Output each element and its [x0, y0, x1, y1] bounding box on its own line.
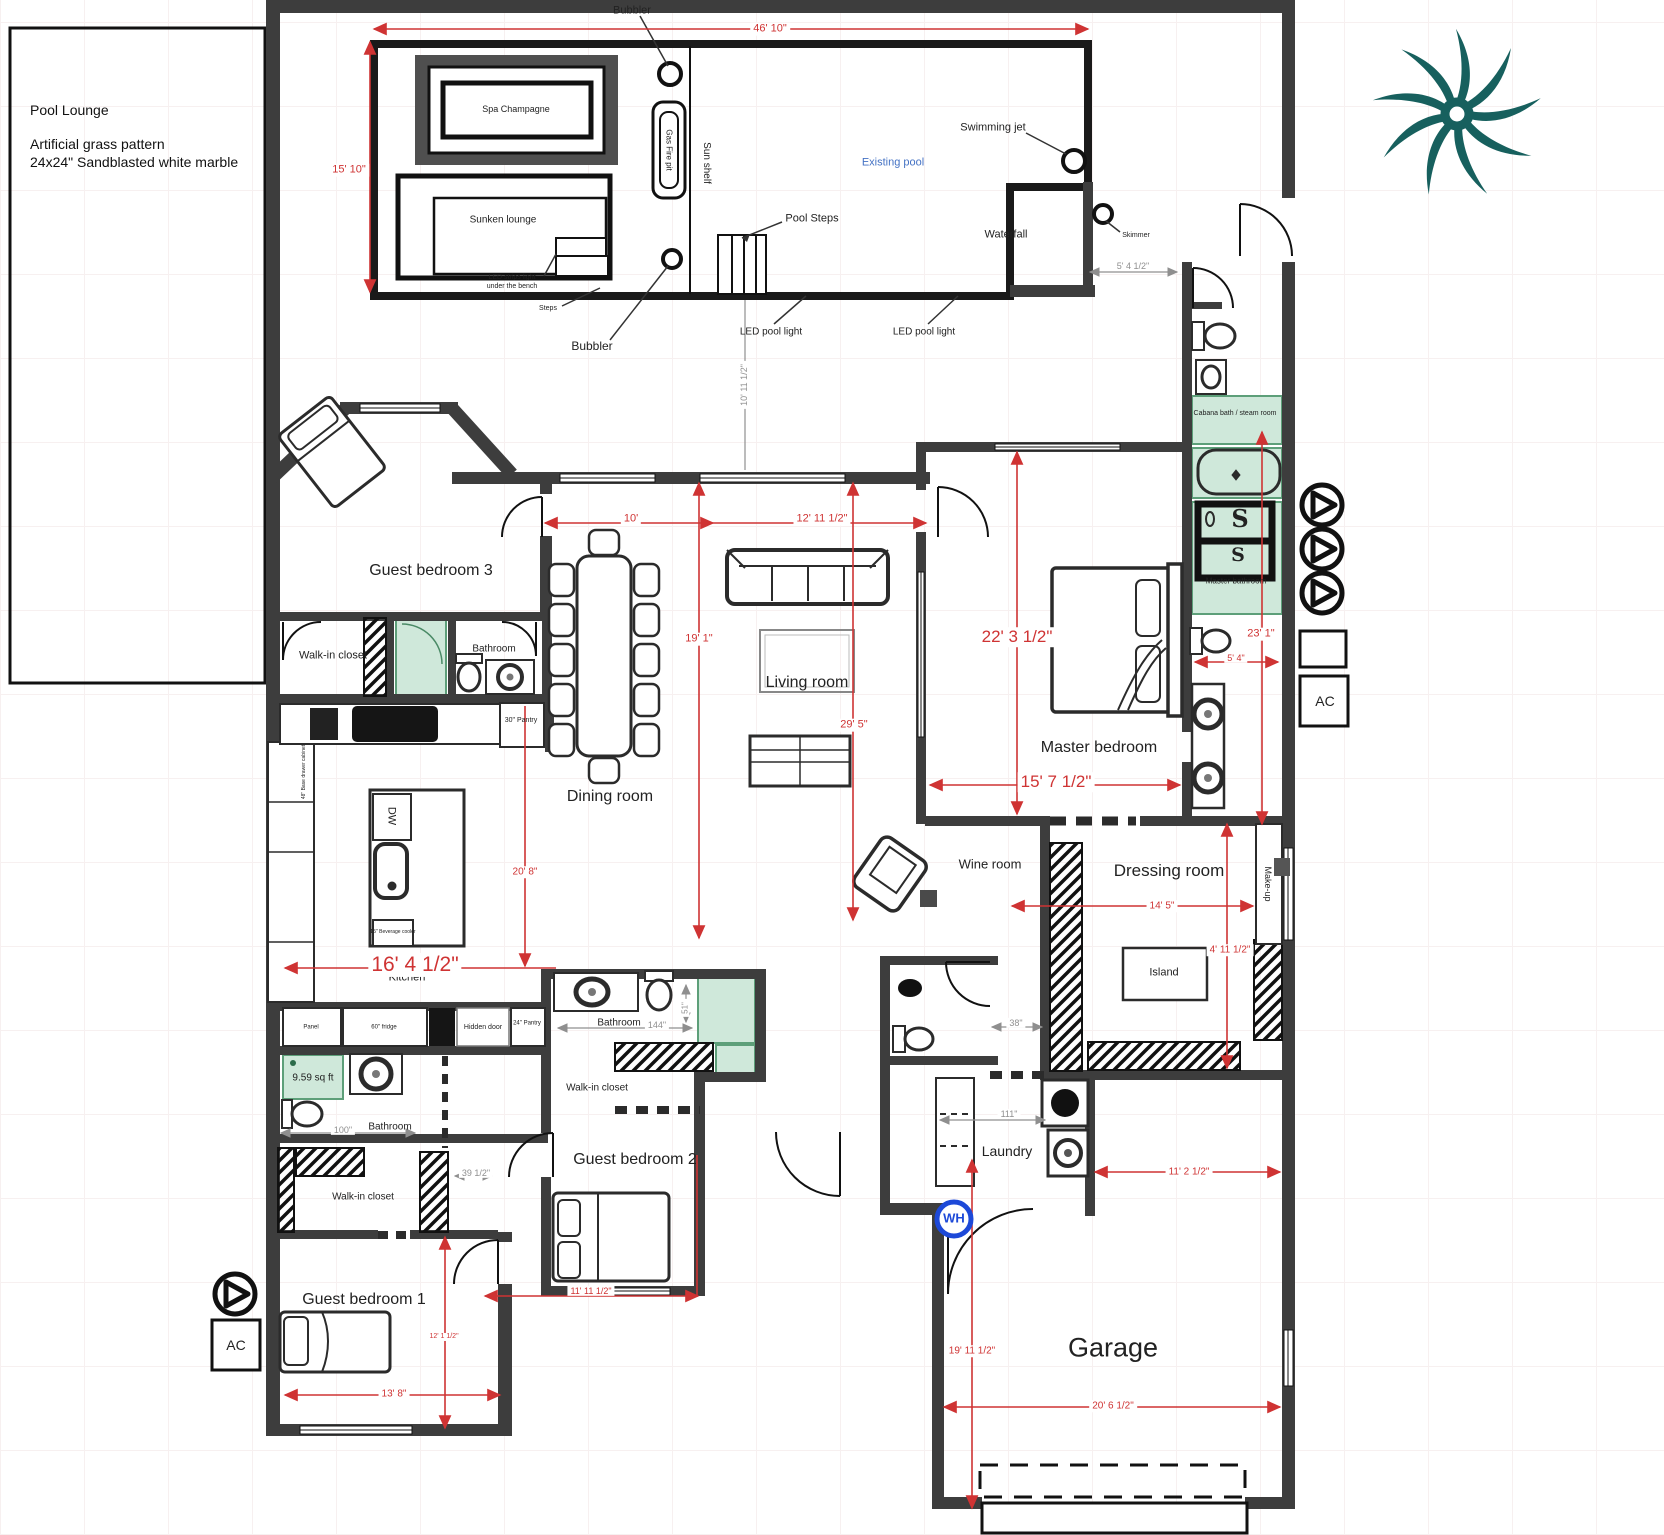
dim-29-5: 29' 5": [837, 719, 870, 732]
room-wine: Wine room: [959, 858, 1022, 873]
dim-20-6: 20' 6 1/2": [1089, 1400, 1137, 1412]
existing-pool-label: Existing pool: [862, 157, 924, 170]
room-dining: Dining room: [567, 788, 653, 806]
pool-lounge-note-1: Artificial grass pattern: [30, 136, 165, 152]
base-cabinet-label: 48" Base drawer cabinet: [302, 745, 308, 799]
led-strips-label-1: LED strips light: [488, 274, 535, 282]
shower-s2-label: S: [1231, 545, 1245, 567]
dim-23-1: 23' 1": [1244, 628, 1277, 641]
palm-tree-icon: [1373, 29, 1541, 195]
dim-111: 111": [998, 1109, 1021, 1119]
dim-19-1: 19' 1": [682, 633, 715, 646]
gas-fire-pit-label: Gas Fire pit: [664, 129, 673, 170]
dim-16-4: 16' 4 1/2": [368, 953, 461, 977]
dim-38: 38": [1006, 1018, 1025, 1028]
pool-steps-label: Pool Steps: [785, 213, 838, 226]
bubbler-top-label: Bubbler: [613, 5, 651, 18]
make-up-label: Make-up: [1263, 866, 1273, 901]
equipment-box: [1300, 631, 1346, 667]
pool-lounge-outline: [10, 28, 265, 683]
plan-graphics: [0, 0, 1664, 1535]
led-pool-light-right-label: LED pool light: [893, 326, 955, 338]
dim-22-3: 22' 3 1/2": [979, 627, 1056, 647]
dim-12-1: 12' 1 1/2": [426, 1333, 461, 1341]
pool-lounge-title: Pool Lounge: [30, 102, 109, 118]
hidden-door-label: Hidden door: [464, 1024, 502, 1032]
room-bathroom-2: Bathroom: [597, 1017, 640, 1029]
dim-15-10: 15' 10": [329, 164, 369, 177]
sun-shelf-label: Sun shelf: [700, 142, 712, 184]
swimming-jet-circle: [1063, 150, 1085, 172]
steps-label: Steps: [539, 305, 557, 313]
fridge-label: 60" fridge: [371, 1025, 396, 1032]
room-guest-bedroom-3: Guest bedroom 3: [369, 562, 493, 580]
dim-4-11: 4' 11 1/2": [1207, 944, 1254, 956]
dim-11-11: 11' 11 1/2": [567, 1286, 614, 1296]
room-cabana-bath: Cabana bath / steam room: [1194, 410, 1277, 418]
pantry-30-label: 30" Pantry: [505, 717, 537, 725]
dim-46-10: 46' 10": [750, 23, 790, 36]
dim-15-7: 15' 7 1/2": [1018, 772, 1095, 792]
room-walkin-closet-1: Walk-in closet: [332, 1191, 394, 1203]
skimmer-label: Skimmer: [1122, 232, 1150, 240]
dim-20-8: 20' 8": [510, 866, 541, 878]
room-living: Living room: [766, 674, 849, 692]
led-pool-light-left-label: LED pool light: [740, 326, 802, 338]
dim-144: 144": [645, 1020, 669, 1030]
bubbler-top-circle: [659, 63, 681, 85]
room-walkin-closet-3: Walk-in closet: [299, 650, 367, 663]
entry-door: [1240, 204, 1292, 256]
swimming-jet-label: Swimming jet: [960, 122, 1025, 135]
dim-51: 51": [680, 999, 689, 1017]
garage-door-slab: [982, 1503, 1247, 1533]
dim-10-11: 10' 11 1/2": [739, 361, 749, 409]
room-bathroom-3: Bathroom: [472, 643, 515, 655]
dim-19-11: 19' 11 1/2": [946, 1345, 998, 1357]
waterfall-label: Waterfall: [985, 229, 1028, 242]
spa-label: Spa Champagne: [482, 104, 550, 114]
pool-steps-shape: [718, 235, 766, 294]
dim-5-4-half: 5' 4 1/2": [1114, 261, 1152, 271]
room-dressing: Dressing room: [1114, 861, 1225, 881]
room-master-bedroom: Master bedroom: [1041, 739, 1158, 757]
sunken-lounge-label: Sunken lounge: [470, 214, 537, 226]
dim-11-2: 11' 2 1/2": [1166, 1166, 1213, 1178]
room-guest-bedroom-1: Guest bedroom 1: [302, 1291, 426, 1309]
dim-5-4: 5' 4": [1224, 653, 1247, 663]
dim-39: 39 1/2": [459, 1168, 493, 1178]
dim-10: 10': [621, 513, 641, 526]
dim-100: 100": [331, 1125, 355, 1135]
dressing-island-label: Island: [1149, 967, 1178, 980]
beverage-cooler-label: 15" Beverage cooler: [370, 930, 415, 936]
bubbler-bottom-label: Bubbler: [571, 340, 612, 354]
led-strips-label-2: under the bench: [487, 283, 538, 291]
dim-14-5: 14' 5": [1147, 900, 1178, 912]
room-walkin-closet-2: Walk-in closet: [566, 1082, 628, 1094]
room-master-bathroom: Master bathroom: [1206, 576, 1266, 585]
pantry-24-label: 24" Pantry: [513, 1021, 541, 1028]
shower-area-label: 9.59 sq ft: [292, 1072, 333, 1084]
dim-13-8: 13' 8": [379, 1388, 410, 1400]
shower-s1-label: S: [1231, 505, 1248, 533]
room-garage: Garage: [1068, 1332, 1158, 1363]
floor-plan: Pool Lounge Artificial grass pattern 24x…: [0, 0, 1664, 1535]
bubbler-bottom-circle: [663, 250, 681, 268]
pool-lounge-note-2: 24x24" Sandblasted white marble: [30, 154, 238, 170]
room-guest-bedroom-2: Guest bedroom 2: [573, 1151, 697, 1169]
dishwasher-label: DW: [385, 807, 398, 825]
room-laundry: Laundry: [982, 1143, 1033, 1159]
ac-left-label: AC: [226, 1337, 245, 1353]
water-heater-label: WH: [943, 1212, 965, 1227]
room-bathroom-kitchen: Bathroom: [368, 1121, 411, 1133]
ac-right-label: AC: [1315, 693, 1334, 709]
dim-12-11: 12' 11 1/2": [793, 513, 850, 526]
panel-label: Panel: [303, 1025, 318, 1032]
skimmer-circle: [1094, 205, 1112, 223]
